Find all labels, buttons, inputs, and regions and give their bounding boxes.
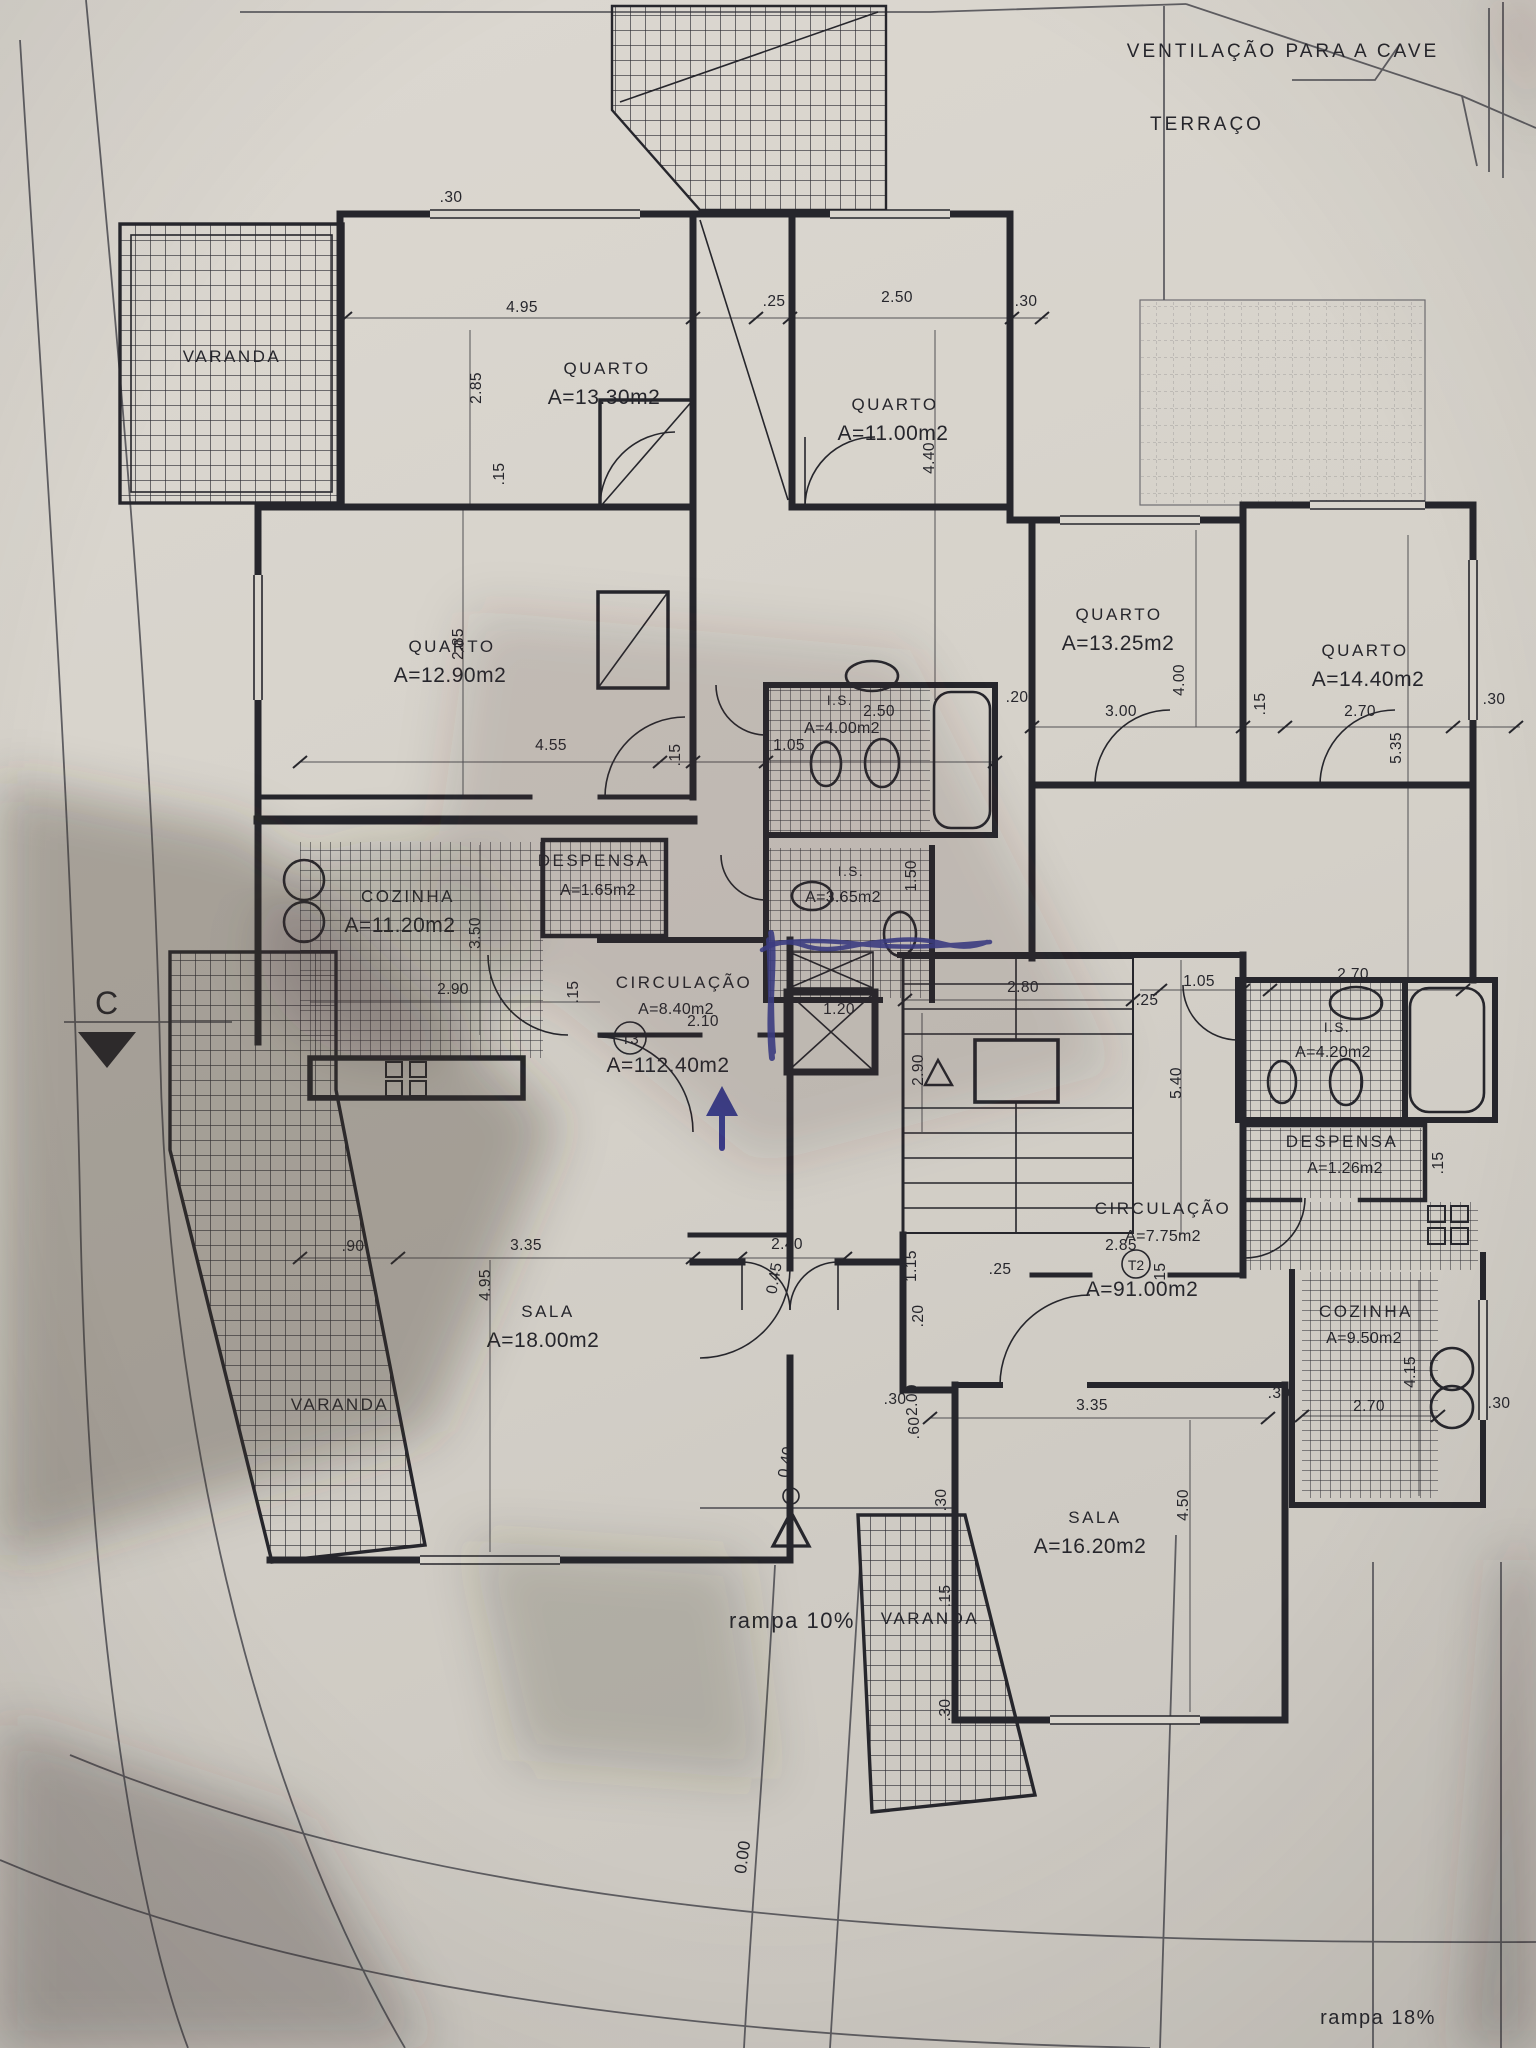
floor-plan-photo: VENTILAÇÃO PARA A CAVE TERRAÇO C rampa 1… [0,0,1536,2048]
floor-plan-drawing: VENTILAÇÃO PARA A CAVE TERRAÇO C rampa 1… [0,0,1536,2048]
vignette [0,0,1536,2048]
